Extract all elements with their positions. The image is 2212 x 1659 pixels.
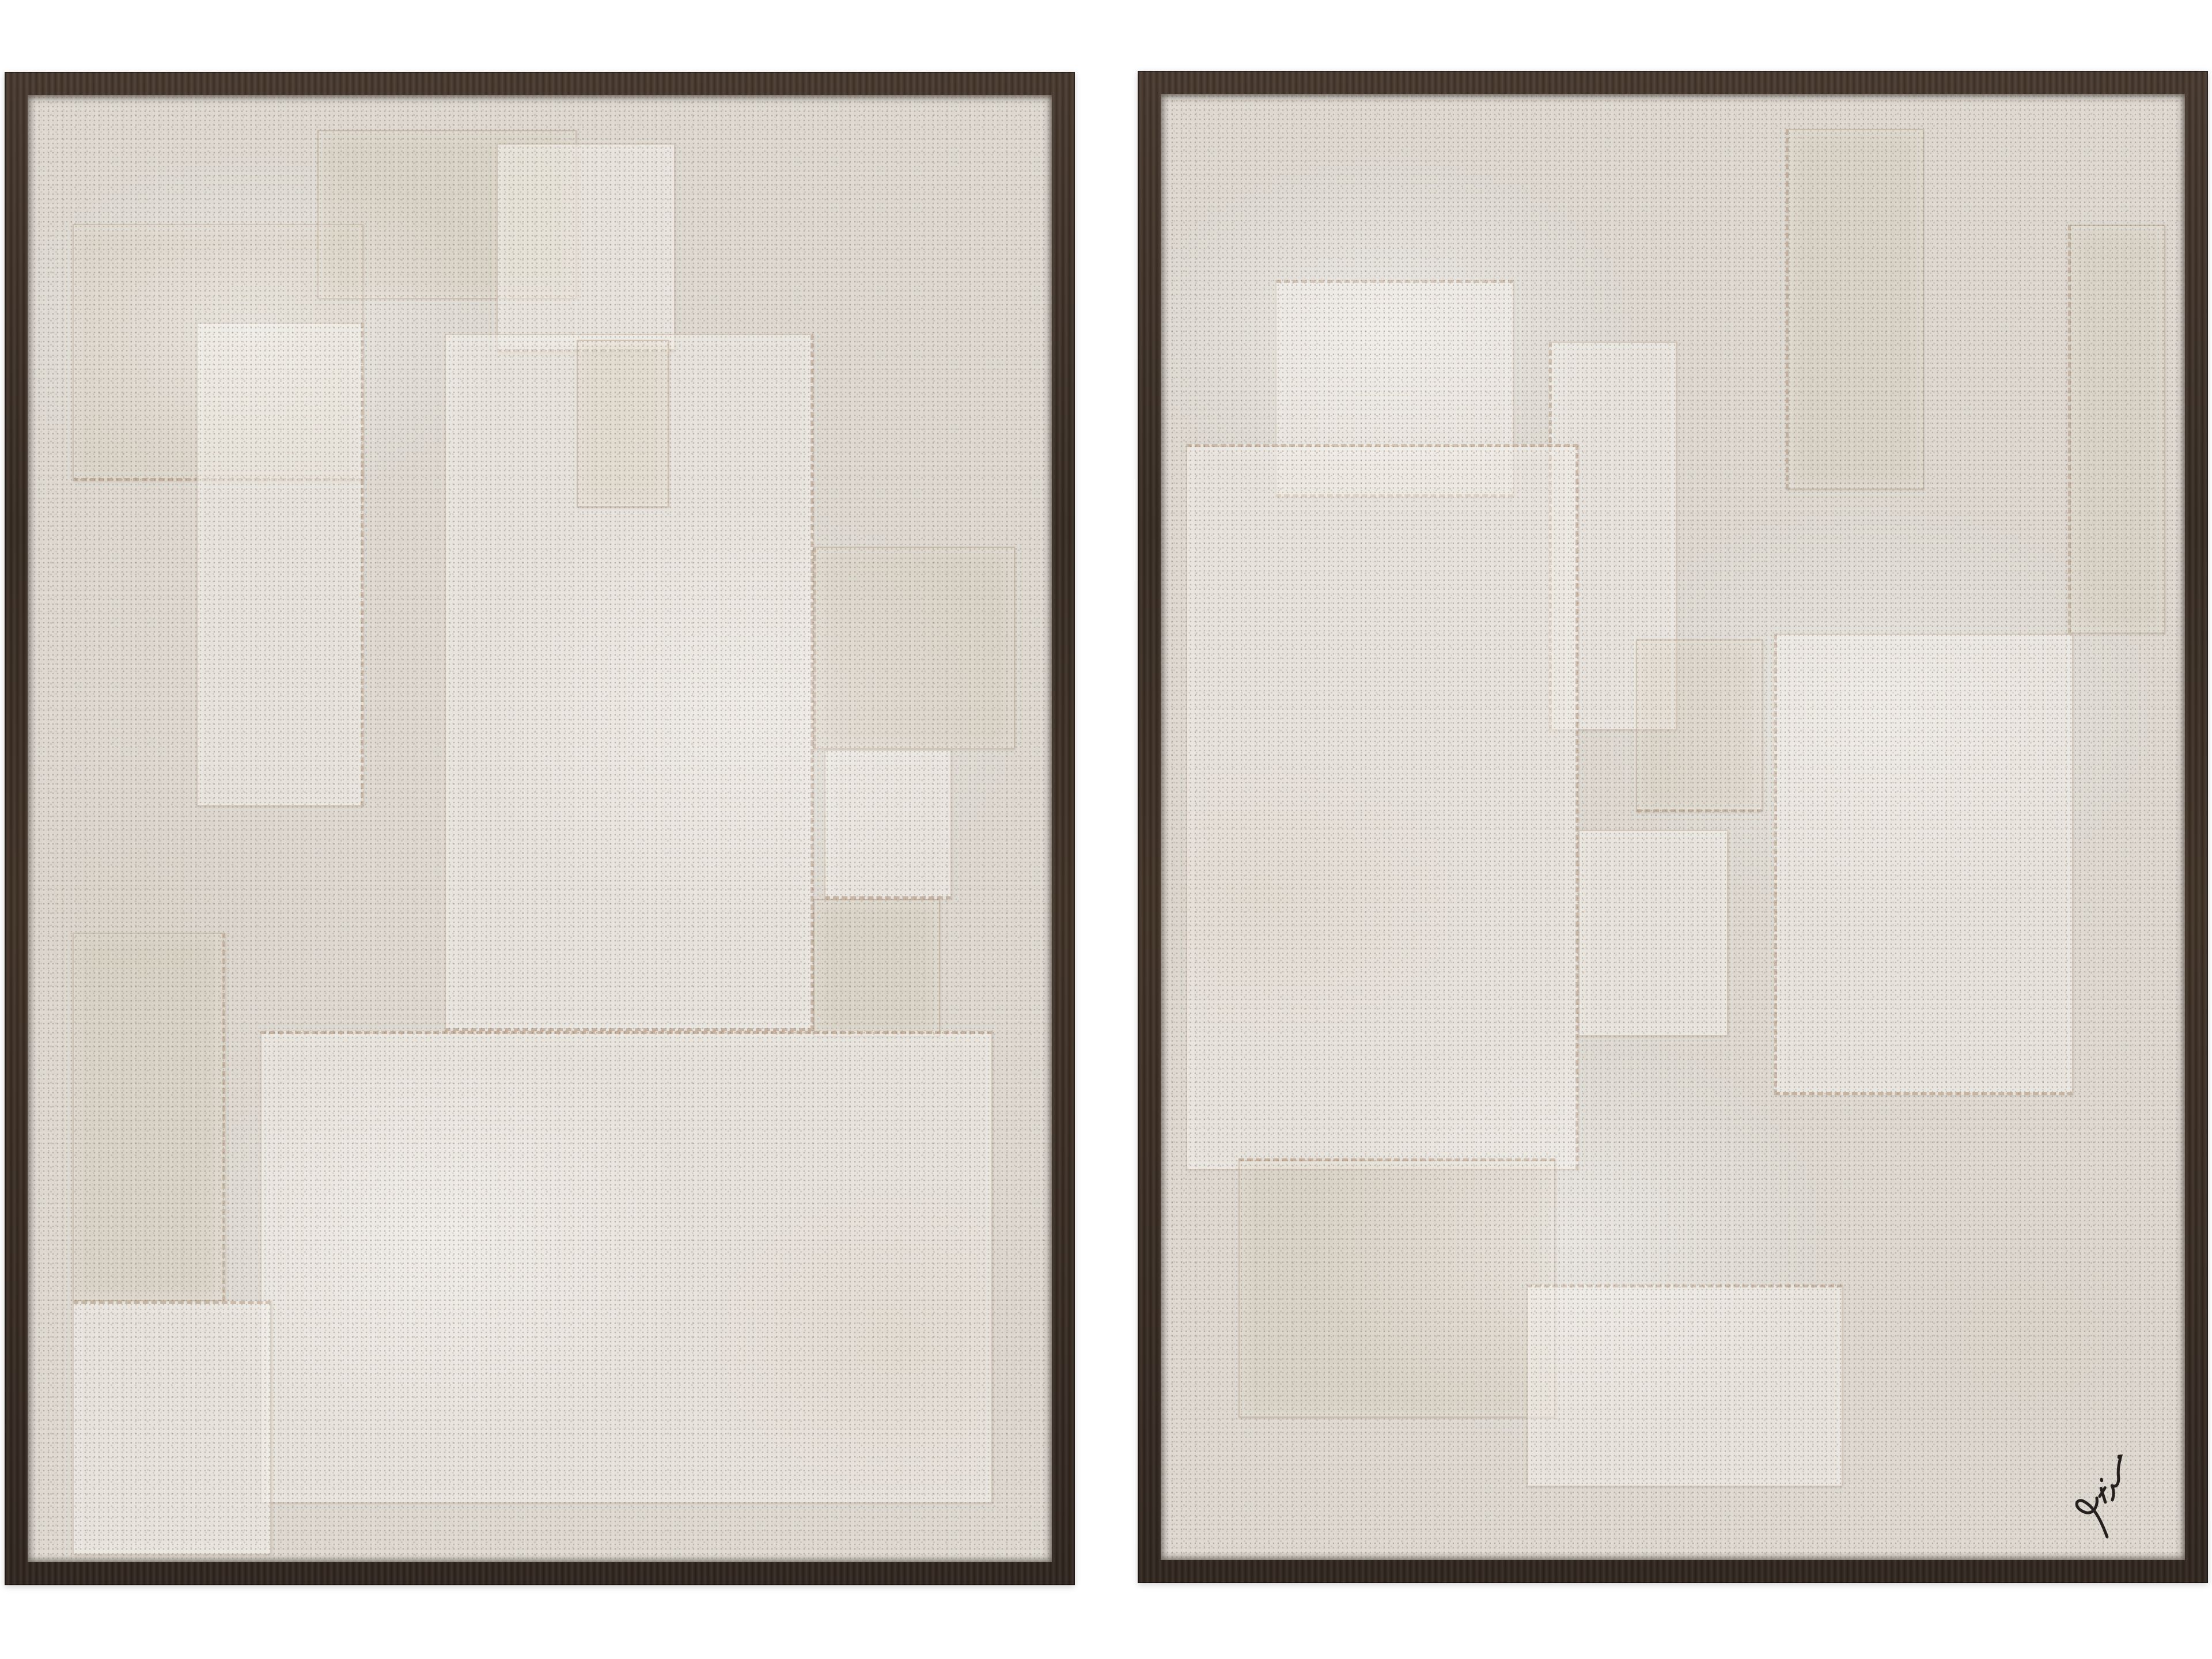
fabric-patch xyxy=(1238,1158,1555,1418)
left-canvas xyxy=(28,95,1052,1562)
fabric-patch xyxy=(260,1031,993,1503)
fabric-patch xyxy=(1774,634,2073,1096)
fabric-patch xyxy=(813,899,940,1037)
fabric-patch xyxy=(73,1301,271,1555)
fabric-patch xyxy=(1578,830,1728,1037)
left-framed-panel xyxy=(5,72,1075,1585)
fabric-patch xyxy=(813,547,1015,749)
fabric-patch xyxy=(1186,444,1578,1170)
fabric-patch xyxy=(73,933,225,1301)
fabric-patch xyxy=(497,143,675,352)
fabric-patch xyxy=(196,323,363,807)
fabric-patch xyxy=(1786,129,1924,490)
right-framed-panel xyxy=(1138,71,2208,1583)
fabric-patch xyxy=(577,340,669,507)
fabric-patch xyxy=(1636,639,1763,812)
artist-signature xyxy=(2061,1451,2167,1547)
fabric-patch xyxy=(1527,1285,1843,1487)
fabric-patch xyxy=(824,749,951,899)
two-piece-framed-wall-art-set xyxy=(0,0,2212,1659)
artist-signature-glyph xyxy=(2061,1451,2167,1547)
fabric-patch xyxy=(2068,225,2165,634)
right-canvas xyxy=(1161,94,2185,1560)
